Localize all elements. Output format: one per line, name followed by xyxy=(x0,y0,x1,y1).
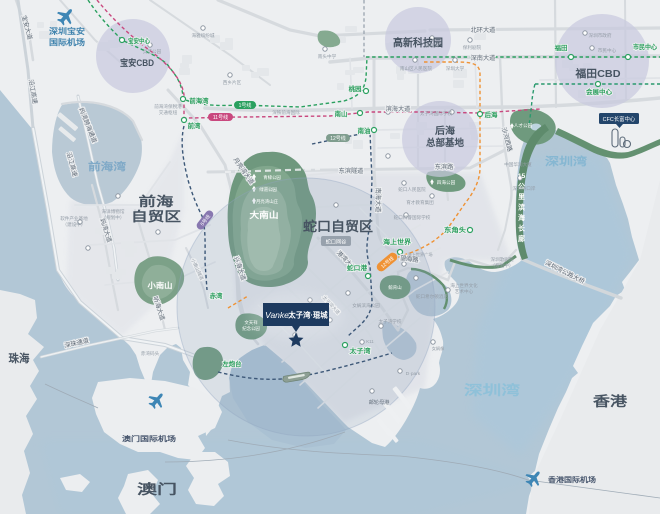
svg-text:澳门: 澳门 xyxy=(137,481,177,497)
svg-text:总部基地: 总部基地 xyxy=(426,137,464,149)
svg-text:会展中心: 会展中心 xyxy=(586,87,613,96)
svg-text:深铁前海国际: 深铁前海国际 xyxy=(272,109,300,116)
svg-text:深圳湾口岸: 深圳湾口岸 xyxy=(513,185,536,192)
svg-text:（规划中）: （规划中） xyxy=(491,262,514,269)
svg-text:深南大道: 深南大道 xyxy=(471,54,496,62)
svg-text:深圳大学: 深圳大学 xyxy=(446,65,465,72)
svg-text:11号线: 11号线 xyxy=(213,114,228,121)
svg-text:福田CBD: 福田CBD xyxy=(574,67,620,80)
svg-text:后海: 后海 xyxy=(435,125,456,137)
svg-text:北环大道: 北环大道 xyxy=(471,26,496,34)
svg-text:前海湾: 前海湾 xyxy=(88,160,127,173)
svg-text:东滨路: 东滨路 xyxy=(435,163,454,171)
svg-text:深圳歌剧院: 深圳歌剧院 xyxy=(491,256,514,263)
svg-text:蛇口科睿国际学校: 蛇口科睿国际学校 xyxy=(394,214,431,221)
svg-text:长: 长 xyxy=(518,224,525,233)
svg-text:大南山: 大南山 xyxy=(250,210,279,220)
svg-text:赤湾: 赤湾 xyxy=(210,291,223,300)
svg-text:南油: 南油 xyxy=(358,126,371,135)
svg-text:海岸城: 海岸城 xyxy=(425,42,439,49)
svg-text:国际机场: 国际机场 xyxy=(49,37,85,47)
svg-text:海上世界: 海上世界 xyxy=(383,237,412,246)
svg-text:澳门国际机场: 澳门国际机场 xyxy=(122,434,177,443)
svg-text:深圳市政府: 深圳市政府 xyxy=(589,32,612,39)
svg-text:海上世界广场: 海上世界广场 xyxy=(407,251,432,258)
svg-text:海: 海 xyxy=(518,213,525,222)
svg-text:月亮湾山庄: 月亮湾山庄 xyxy=(256,198,279,205)
svg-text:自贸区: 自贸区 xyxy=(131,209,181,224)
svg-text:东角头: 东角头 xyxy=(444,225,467,234)
svg-text:女娲滨海公园: 女娲滨海公园 xyxy=(352,302,380,309)
svg-text:前海: 前海 xyxy=(139,194,174,209)
svg-text:蛇口网谷: 蛇口网谷 xyxy=(326,238,348,246)
svg-text:（规划中）: （规划中） xyxy=(102,214,125,221)
svg-text:四海公园: 四海公园 xyxy=(437,179,456,186)
svg-text:东滨隧道: 东滨隧道 xyxy=(339,167,364,175)
svg-text:鲸背山: 鲸背山 xyxy=(388,284,401,291)
svg-text:小南山: 小南山 xyxy=(148,280,173,290)
svg-text:海洋博物馆: 海洋博物馆 xyxy=(102,208,125,215)
svg-text:15: 15 xyxy=(518,173,526,180)
svg-text:前海湾保税港: 前海湾保税港 xyxy=(154,103,182,110)
svg-text:太子湾国际学校: 太子湾国际学校 xyxy=(420,110,453,117)
svg-text:香港国际机场: 香港国际机场 xyxy=(547,475,597,484)
svg-text:前海湾: 前海湾 xyxy=(189,96,209,105)
svg-text:12号线: 12号线 xyxy=(330,135,346,142)
svg-text:宝安CBD: 宝安CBD xyxy=(120,57,154,68)
svg-text:育才教育集团: 育才教育集团 xyxy=(406,199,434,206)
svg-text:珠海: 珠海 xyxy=(9,351,30,365)
svg-text:滨: 滨 xyxy=(518,203,525,212)
svg-text:香港: 香港 xyxy=(592,393,628,409)
svg-text:宝安中心: 宝安中心 xyxy=(128,36,151,45)
svg-text:南海大道: 南海大道 xyxy=(374,188,382,213)
svg-text:南头中学: 南头中学 xyxy=(318,53,337,60)
svg-text:南山区人民医院: 南山区人民医院 xyxy=(400,65,433,72)
svg-text:交通枢纽: 交通枢纽 xyxy=(159,109,178,116)
svg-text:西乡片区: 西乡片区 xyxy=(223,79,242,86)
svg-text:（建设中）: （建设中） xyxy=(63,221,86,228)
svg-text:市民中心: 市民中心 xyxy=(633,42,658,51)
svg-text:太子湾: 太子湾 xyxy=(350,346,372,355)
svg-text:人才公园: 人才公园 xyxy=(514,122,533,129)
svg-text:蛇口人民医院: 蛇口人民医院 xyxy=(398,186,426,193)
svg-text:深圳宝安: 深圳宝安 xyxy=(49,26,85,36)
svg-text:艺术中心: 艺术中心 xyxy=(455,288,474,295)
svg-text:太子湾学校: 太子湾学校 xyxy=(379,318,402,325)
svg-text:海上世界文化: 海上世界文化 xyxy=(450,282,478,289)
svg-text:K11: K11 xyxy=(366,339,374,344)
svg-text:纪念公园: 纪念公园 xyxy=(242,325,260,332)
svg-text:左炮台: 左炮台 xyxy=(221,359,242,368)
svg-text:软件产业基地: 软件产业基地 xyxy=(60,215,88,222)
svg-text:深圳湾: 深圳湾 xyxy=(464,382,521,398)
svg-text:中国华润大厦: 中国华润大厦 xyxy=(504,161,532,168)
svg-text:灵芝公园: 灵芝公园 xyxy=(143,48,162,55)
svg-text:蛇口自贸区: 蛇口自贸区 xyxy=(303,219,373,234)
svg-text:邮轮母港: 邮轮母港 xyxy=(369,398,391,406)
svg-text:女娲像: 女娲像 xyxy=(432,345,445,352)
svg-text:廊: 廊 xyxy=(518,234,525,243)
svg-text:Vanke: Vanke xyxy=(265,310,289,320)
svg-text:蛇口希尔顿酒店: 蛇口希尔顿酒店 xyxy=(416,293,449,300)
svg-text:CFC长富中心: CFC长富中心 xyxy=(603,115,636,123)
svg-text:太子湾·琨城: 太子湾·琨城 xyxy=(287,311,328,320)
svg-text:绿道公园: 绿道公园 xyxy=(259,186,277,193)
svg-text:海雅缤纷城: 海雅缤纷城 xyxy=(192,32,215,39)
svg-text:1号线: 1号线 xyxy=(239,102,252,109)
svg-text:滨海大道: 滨海大道 xyxy=(386,105,411,113)
svg-text:南山: 南山 xyxy=(335,109,348,118)
svg-text:D·park: D·park xyxy=(406,371,421,377)
svg-text:前湾: 前湾 xyxy=(188,121,201,130)
svg-text:福田: 福田 xyxy=(554,43,568,52)
svg-text:桃园: 桃园 xyxy=(349,84,362,93)
svg-text:保利剧院: 保利剧院 xyxy=(463,44,482,51)
svg-text:后海: 后海 xyxy=(485,110,498,119)
svg-text:蛇口港: 蛇口港 xyxy=(347,263,368,272)
svg-text:文天祥: 文天祥 xyxy=(244,319,258,326)
svg-text:青棣公园: 青棣公园 xyxy=(263,174,281,181)
svg-text:赤湾码头: 赤湾码头 xyxy=(141,350,160,357)
svg-text:里: 里 xyxy=(518,192,525,201)
svg-text:市民中心: 市民中心 xyxy=(598,47,617,54)
svg-text:深圳湾: 深圳湾 xyxy=(545,154,587,168)
